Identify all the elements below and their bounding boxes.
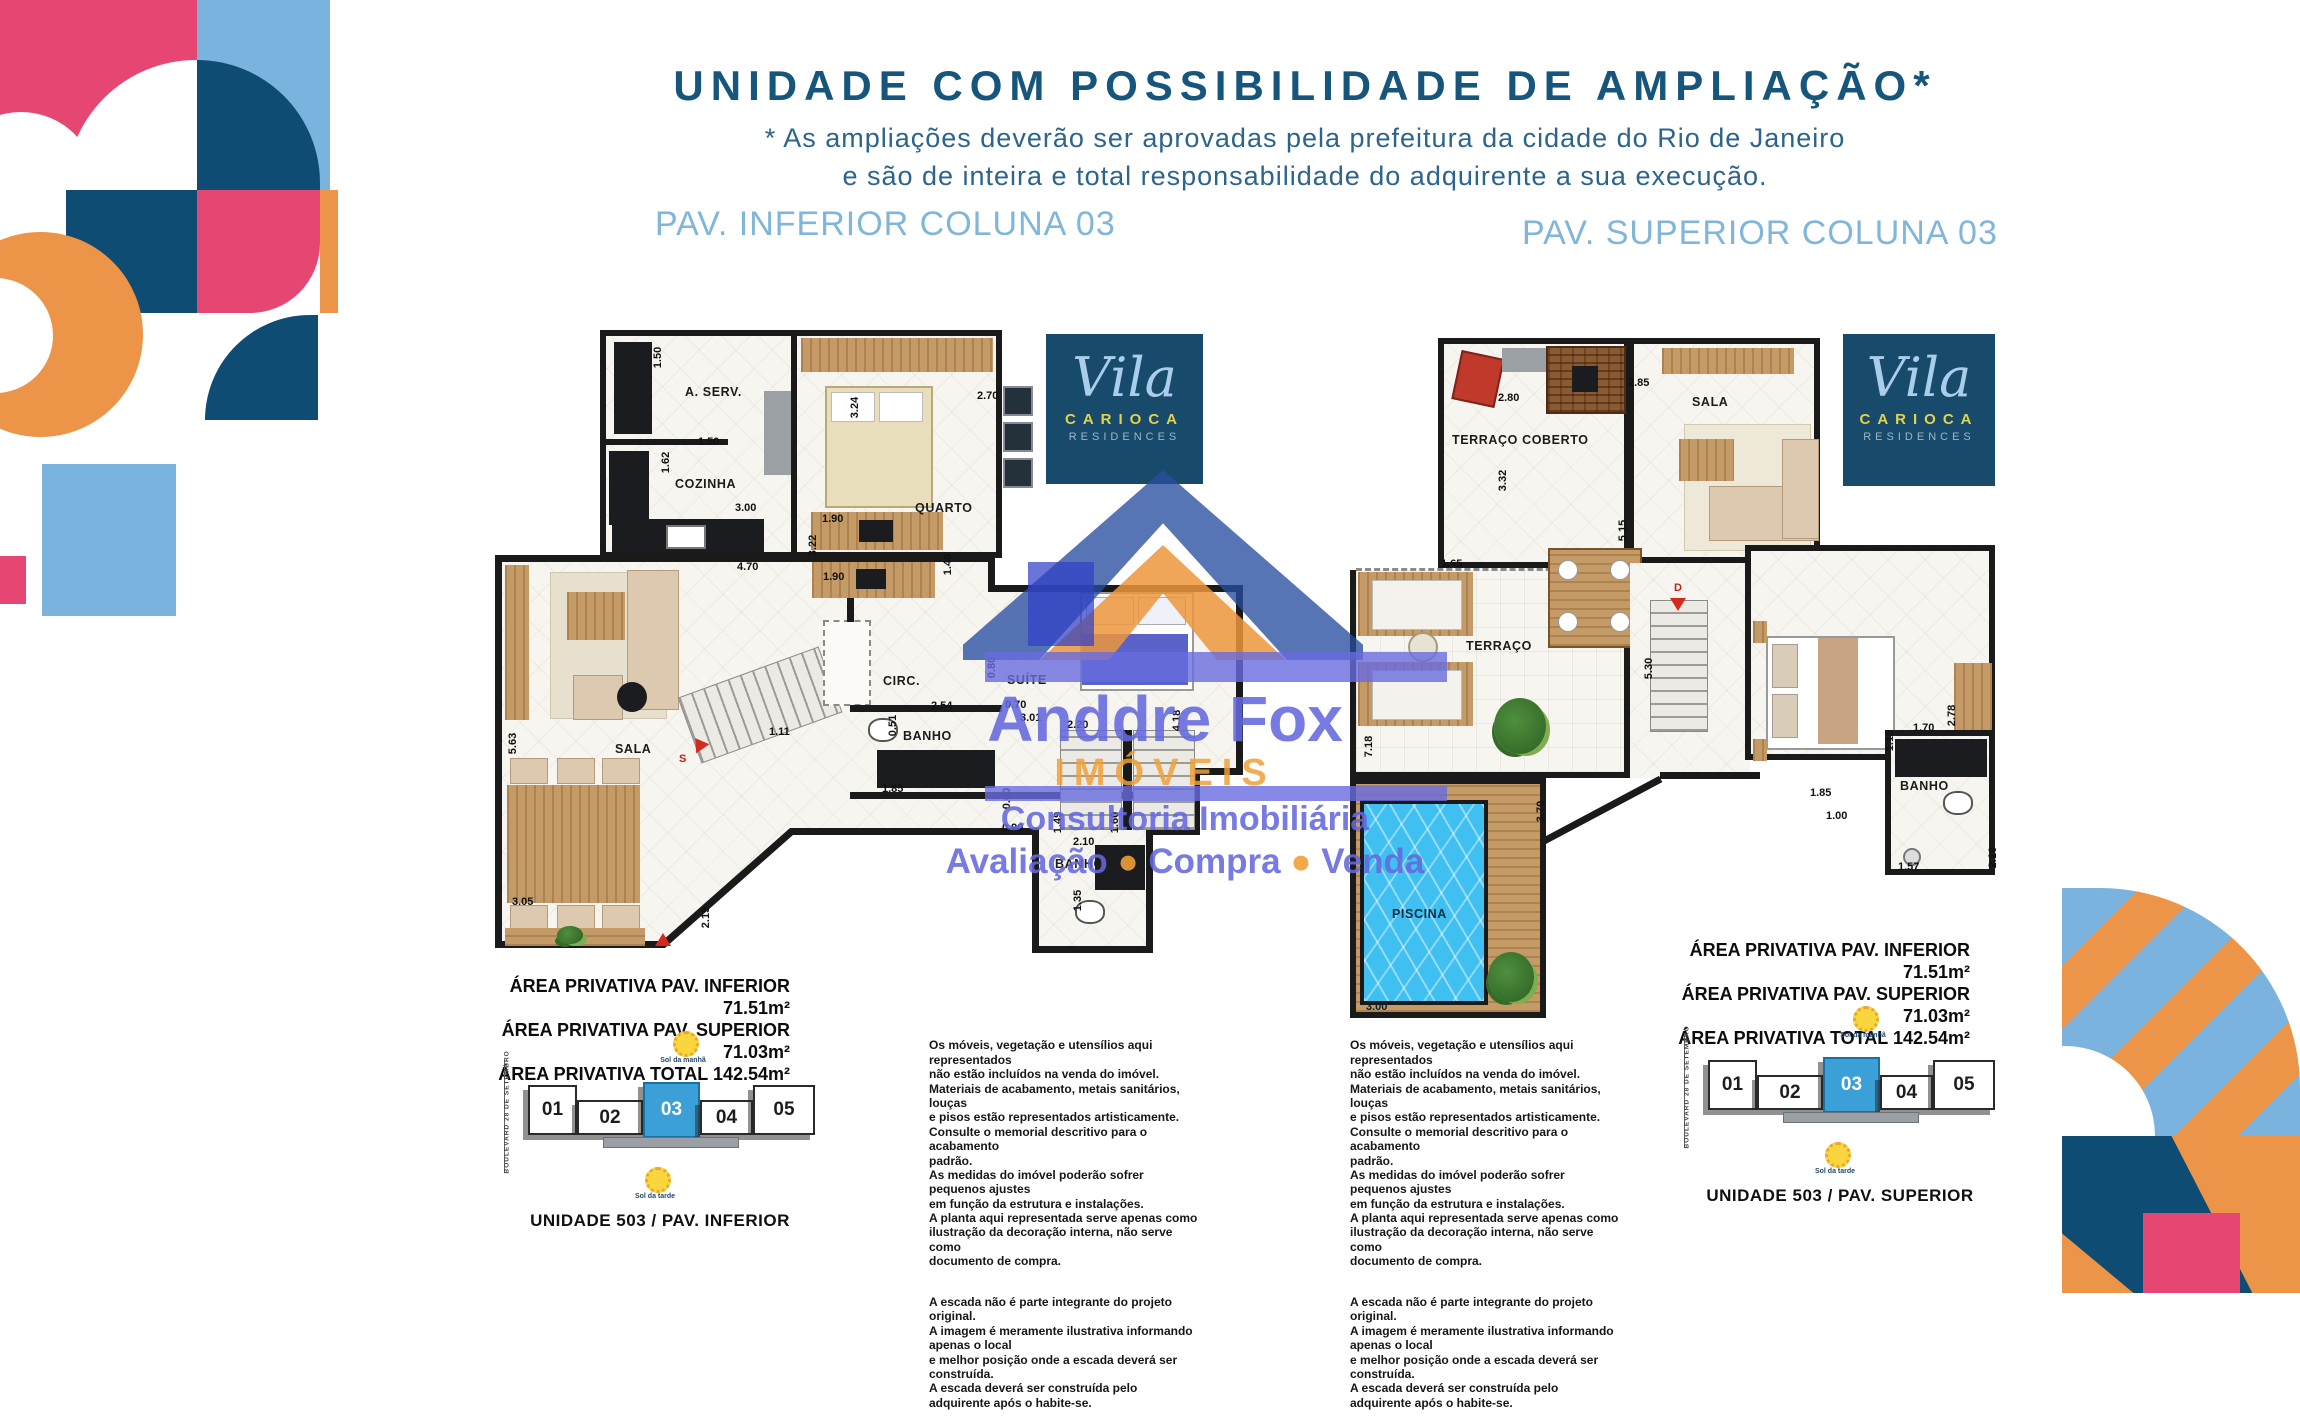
staircase (1133, 730, 1195, 830)
disclaimer-paragraph: A escada não é parte integrante do proje… (929, 1295, 1199, 1410)
ac-unit (1003, 386, 1033, 416)
blanket (1082, 634, 1188, 685)
room-label: BANHO (1055, 858, 1104, 871)
outdoor-dining-table (1548, 548, 1642, 648)
unit-block-03-highlight: 03 (1823, 1057, 1880, 1113)
laundry-tank (614, 342, 652, 434)
room-label: BANHO (903, 730, 952, 743)
wardrobe (801, 338, 993, 372)
plant (557, 926, 583, 944)
decorative-shape (197, 190, 320, 313)
room-label: TERRAÇO (1466, 640, 1532, 653)
toilet (1943, 791, 1973, 815)
dimension-label: 2.80 (1498, 393, 1519, 404)
stair-rail (1123, 730, 1132, 830)
sun-icon (673, 1031, 699, 1057)
page-subtitle: * As ampliações deverão ser aprovadas pe… (600, 120, 2010, 196)
room-label: SALA (615, 743, 651, 756)
room-label: TERRAÇO COBERTO (1452, 434, 1589, 447)
room-banho-superior (1885, 730, 1995, 875)
plate (1610, 612, 1630, 632)
street-label: BOULEVARD 28 DE SETEMBRO (504, 1054, 511, 1174)
dimension-label: 1.70 (1913, 723, 1934, 734)
side-table (1408, 632, 1438, 662)
ac-unit (1003, 458, 1033, 488)
section-header-superior: PAV. SUPERIOR COLUNA 03 (1522, 214, 1998, 253)
unit-block-02: 02 (1757, 1075, 1823, 1110)
logo-script-text: Vila (1046, 348, 1203, 407)
dimension-label: 1.50 (653, 347, 664, 368)
unit-block-02: 02 (577, 1100, 643, 1135)
dimension-label: 3.01 (1020, 713, 1041, 724)
computer (859, 520, 893, 542)
dimension-label: 0.90 (1002, 823, 1023, 834)
sink (666, 525, 706, 549)
dimension-label: 2.78 (1947, 705, 1958, 726)
dimension-label: 1.40 (943, 554, 954, 575)
dimension-label: 5.63 (508, 733, 519, 754)
bath-counter (1895, 739, 1987, 777)
sun-icon (645, 1167, 671, 1193)
building-locator-superior: BOULEVARD 28 DE SETEMBRO Sol da manhã 01… (1675, 1000, 2005, 1215)
room-label: BANHO (1900, 780, 1949, 793)
dimension-label: 1.85 (1810, 788, 1831, 799)
dimension-label: 2.15 (701, 907, 712, 928)
sun-lounger (1358, 572, 1473, 636)
sun-label-top: Sol da manhã (638, 1057, 728, 1064)
bullet-icon: ● (1290, 842, 1321, 881)
bed (825, 386, 933, 508)
room-terraco-coberto (1438, 338, 1630, 568)
ac-units (1003, 386, 1033, 488)
decorative-shape (205, 315, 318, 420)
disclaimer-block: Os móveis, vegetação e utensílios aqui r… (929, 1024, 1199, 1425)
computer (856, 569, 886, 589)
entry-arrow (655, 933, 671, 946)
dimension-label: 5.15 (1618, 520, 1629, 541)
lounger-cushion (1372, 580, 1462, 630)
street-label: BOULEVARD 28 DE SETEMBRO (1684, 1029, 1691, 1149)
diagonal-wall (1541, 776, 1663, 845)
unit-block-04: 04 (700, 1100, 753, 1135)
sun-label-top: Sol da manhã (1818, 1032, 1908, 1039)
pool-deck (1350, 778, 1546, 1018)
stair-marker: S (679, 753, 686, 765)
plant (1494, 698, 1546, 754)
sideboard (1662, 348, 1794, 374)
dimension-label: 1.50 (698, 437, 719, 448)
closet-dashed (823, 620, 871, 706)
swimming-pool (1360, 800, 1488, 1005)
bed (1766, 636, 1895, 750)
dimension-label: 1.62 (661, 452, 672, 473)
lower-floor-zone: S (495, 555, 1245, 955)
logo-sub-text: RESIDENCES (1843, 431, 1995, 443)
dimension-label: 5.30 (1644, 658, 1655, 679)
room-terraco (1350, 570, 1630, 778)
dimension-label: 3.24 (850, 397, 861, 418)
stair-direction-arrow (1670, 598, 1686, 611)
decorative-shape (42, 464, 176, 616)
dimension-label: 1.90 (822, 514, 843, 525)
ac-unit (1003, 422, 1033, 452)
stove (609, 451, 649, 525)
dimension-label: 2.70 (977, 391, 998, 402)
dimension-label: 1.35 (1073, 890, 1084, 911)
counter (1502, 348, 1546, 372)
sun-label-bottom: Sol da tarde (1790, 1168, 1880, 1175)
lounger-cushion (1372, 670, 1462, 720)
room-sala-superior (1628, 338, 1820, 563)
dimension-label: 1.65 (1441, 559, 1462, 570)
barbecue-grill (1546, 346, 1626, 414)
unit-block-05: 05 (753, 1085, 815, 1135)
dimension-label: 3.00 (735, 503, 756, 514)
dimension-label: 3.00 (1366, 1002, 1387, 1013)
plant (1488, 952, 1534, 1002)
sofa-chaise (1782, 439, 1819, 539)
unit-block-03-highlight: 03 (643, 1082, 700, 1138)
dimension-label: 0.70 (1005, 700, 1026, 711)
tv-panel (505, 565, 529, 720)
locator-caption: UNIDADE 503 / PAV. INFERIOR (495, 1211, 825, 1231)
dimension-label: 2.54 (931, 701, 952, 712)
dimension-label: 2.10 (1988, 847, 1999, 868)
grill-pit (1572, 366, 1598, 392)
dimension-label: 1.49 (1053, 812, 1064, 833)
decorative-shape (2143, 1213, 2240, 1293)
locator-caption: UNIDADE 503 / PAV. SUPERIOR (1675, 1186, 2005, 1206)
dimension-label: 3.32 (1498, 470, 1509, 491)
desk (1679, 439, 1734, 481)
logo-sub-text: RESIDENCES (1046, 431, 1203, 443)
room-label: SALA (1692, 396, 1728, 409)
dimension-label: 1.57 (1898, 862, 1919, 873)
sun-lounger (1358, 662, 1473, 726)
room-label: CIRC. (883, 675, 920, 688)
room-label: QUARTO (915, 502, 973, 515)
building-locator-inferior: BOULEVARD 28 DE SETEMBRO Sol da manhã 01… (495, 1025, 825, 1240)
decorative-shape (0, 556, 26, 604)
staircase (1650, 600, 1708, 732)
vila-carioca-logo: Vila CARIOCA RESIDENCES (1843, 334, 1995, 486)
pillow (1086, 597, 1134, 625)
dimension-label: 1.60 (1110, 812, 1121, 833)
chair (557, 758, 595, 784)
sun-icon (1825, 1142, 1851, 1168)
chair (510, 758, 548, 784)
red-cabinet (1451, 350, 1504, 408)
pillow (879, 392, 923, 422)
building-base (603, 1137, 739, 1148)
interior-wall (850, 705, 1002, 712)
dimension-label: 4.18 (1172, 710, 1183, 731)
wardrobe (1954, 663, 1992, 733)
plate (1610, 560, 1630, 580)
plate (1558, 560, 1578, 580)
pillow (1772, 644, 1798, 688)
pillow (1138, 597, 1186, 625)
dimension-label: 2.85 (1628, 378, 1649, 389)
nightstand (1753, 621, 1767, 643)
dimension-label: 3.22 (808, 535, 819, 556)
console-table (567, 592, 625, 640)
vila-carioca-logo: Vila CARIOCA RESIDENCES (1046, 334, 1203, 484)
plate (1558, 612, 1578, 632)
logo-name-text: CARIOCA (1046, 411, 1203, 428)
coffee-table (617, 682, 647, 712)
floorplan-brochure: { "header": { "title": "UNIDADE COM POSS… (0, 0, 2300, 1293)
dimension-label: 0.51 (888, 715, 899, 736)
dimension-label: 2.10 (1073, 837, 1094, 848)
unit-block-01: 01 (1708, 1060, 1757, 1110)
armchair (573, 675, 623, 720)
disclaimer-paragraph: Os móveis, vegetação e utensílios aqui r… (929, 1038, 1199, 1268)
room-label: PISCINA (1392, 908, 1447, 921)
dimension-label: 1.15 (1885, 730, 1896, 751)
nightstand (1753, 739, 1767, 761)
suite-bed (1080, 592, 1194, 691)
blanket (1818, 638, 1858, 744)
sun-label-bottom: Sol da tarde (610, 1193, 700, 1200)
pillow (1772, 694, 1798, 738)
unit-block-04: 04 (1880, 1075, 1933, 1110)
room-label: COZINHA (675, 478, 736, 491)
dimension-label: 2.20 (1067, 720, 1088, 731)
unit-block-05: 05 (1933, 1060, 1995, 1110)
sun-icon (1853, 1006, 1879, 1032)
building-base (1783, 1112, 1919, 1123)
dimension-label: 0.60 (1002, 788, 1013, 809)
unit-block-01: 01 (528, 1085, 577, 1135)
room-label: A. SERV. (685, 386, 742, 399)
disclaimer-paragraph: Os móveis, vegetação e utensílios aqui r… (1350, 1038, 1620, 1268)
stair-marker: D (1674, 582, 1682, 594)
dining-table (507, 785, 640, 903)
logo-name-text: CARIOCA (1843, 411, 1995, 428)
dimension-label: 4.70 (737, 562, 758, 573)
page-title: UNIDADE COM POSSIBILIDADE DE AMPLIAÇÃO* (600, 62, 2010, 110)
wall (1660, 772, 1760, 779)
section-header-inferior: PAV. INFERIOR COLUNA 03 (655, 205, 1116, 244)
dimension-label: 1.00 (1826, 811, 1847, 822)
decorative-shape (320, 190, 338, 313)
dimension-label: 1.85 (882, 784, 903, 795)
dimension-label: 1.90 (823, 572, 844, 583)
dimension-label: 3.05 (512, 897, 533, 908)
disclaimer-paragraph: A escada não é parte integrante do proje… (1350, 1295, 1620, 1410)
room-label: SUÍTE (1007, 674, 1047, 687)
disclaimer-block: Os móveis, vegetação e utensílios aqui r… (1350, 1024, 1620, 1425)
chair (602, 758, 640, 784)
room-bedroom-superior (1745, 545, 1995, 760)
dimension-label: 3.70 (1536, 801, 1547, 822)
dimension-label: 1.11 (769, 727, 790, 738)
dimension-label: 7.18 (1364, 736, 1375, 757)
logo-script-text: Vila (1843, 348, 1995, 407)
dimension-label: 0.80 (987, 657, 998, 678)
